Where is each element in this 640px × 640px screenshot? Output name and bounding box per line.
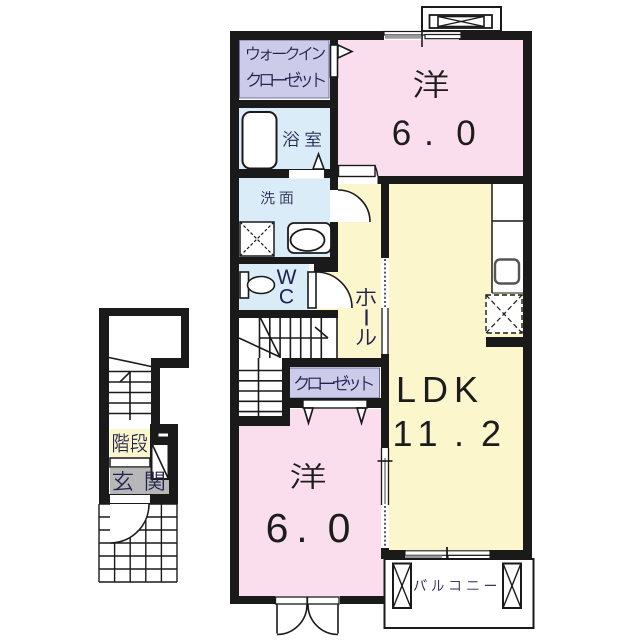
svg-text:6: 6 (392, 114, 411, 153)
svg-text:.: . (296, 505, 307, 551)
svg-text:2: 2 (481, 413, 501, 454)
svg-text:LDK: LDK (396, 369, 484, 410)
svg-text:6: 6 (266, 505, 289, 551)
svg-text:1: 1 (392, 413, 412, 454)
svg-text:0: 0 (328, 505, 351, 551)
svg-text:1: 1 (417, 413, 437, 454)
svg-text:.: . (454, 413, 464, 454)
svg-text:.: . (424, 114, 434, 153)
svg-text:0: 0 (456, 114, 475, 153)
svg-text:C: C (279, 286, 294, 309)
